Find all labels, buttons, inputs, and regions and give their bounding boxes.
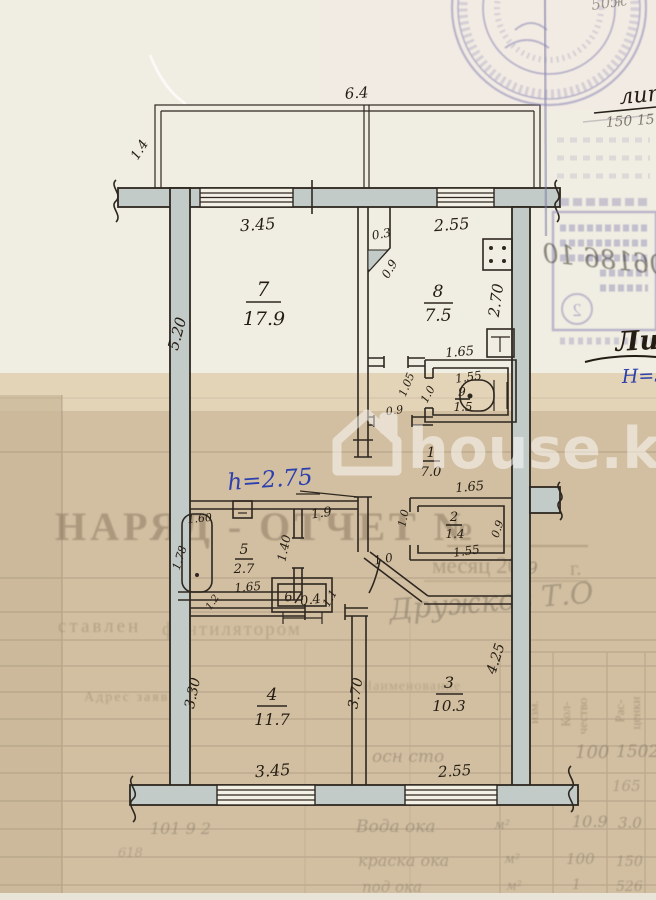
dim-wc-top: 1.65 [445, 344, 475, 361]
form-price-header2: ценки [628, 696, 643, 729]
form-price-header1: Рас- [612, 699, 627, 722]
form-qty-header1: Кол- [558, 701, 573, 726]
building-height-note: Н=3.0 [620, 364, 656, 388]
dim-r4-width: 3.45 [254, 760, 291, 781]
red-nums: 150 15 [605, 112, 655, 131]
dim-hall-width: 1.9 [310, 505, 333, 523]
row5-desc: под ока [362, 878, 422, 896]
row4-desc: краска ока [358, 851, 449, 870]
watermark-text: house.kg [408, 416, 656, 482]
dim-balcony-width: 6.4 [344, 83, 369, 103]
row5-unit: м² [506, 879, 522, 894]
room-9-area: 1.5 [453, 400, 472, 414]
row3-unit: м² [494, 818, 510, 833]
dim-bath-width: 1.60 [187, 511, 213, 526]
row1-qty: 100 [575, 742, 609, 763]
row4-unit: м² [504, 852, 520, 867]
room-2-number: 2 [449, 510, 458, 525]
row1-price: 1502 [616, 742, 656, 762]
form-qty-header2: чество [575, 698, 590, 735]
row1-desc: осн сто [372, 747, 444, 767]
room-7-area: 17.9 [243, 308, 285, 330]
stamp-number: 2 [573, 300, 582, 320]
dim-r8-width: 2.55 [432, 214, 470, 236]
room-5-number: 5 [240, 542, 249, 558]
dim-r7-width: 3.45 [239, 214, 276, 235]
row3-desc: Вода ока [355, 817, 436, 837]
form-address-frag: Адрес заявл [84, 690, 178, 705]
room-3-area: 10.3 [432, 697, 465, 715]
room-6-area: 0.4 [299, 592, 322, 610]
room-8-number: 8 [433, 282, 444, 302]
dim-r3-width: 2.55 [436, 761, 472, 781]
room-2-area: 1.4 [445, 527, 464, 541]
fold-crease [545, 0, 546, 236]
floorplan-photo: НАРЯД - ОТЧЕТ № месяц 200 г. ставлен фен… [0, 0, 656, 900]
lit-small-note: лит [618, 81, 656, 110]
row2-price: 165 [612, 777, 641, 795]
room-9-number: 9 [458, 385, 466, 399]
row4-price: 150 [616, 854, 643, 870]
row4-qty: 100 [566, 850, 595, 868]
room-5-area: 2.7 [233, 562, 255, 577]
row3-price: 3.0 [618, 814, 642, 832]
form-title: НАРЯД - ОТЧЕТ № [55, 504, 478, 549]
room-3-number: 3 [444, 673, 454, 692]
form-prepared-frag1: ставлен [58, 616, 141, 637]
left-num2: 618 [118, 846, 143, 861]
left-nums: 101 9 2 [150, 819, 211, 838]
row5-price: 526 [616, 879, 643, 895]
row3-qty: 10.9 [572, 812, 608, 831]
room-4-area: 11.7 [254, 710, 290, 729]
room-4-number: 4 [266, 685, 278, 705]
dim-bath-bottom: 1.65 [234, 579, 262, 595]
room-8-area: 7.5 [424, 306, 451, 326]
row5-qty: 1 [572, 877, 581, 893]
floorplan-canvas: НАРЯД - ОТЧЕТ № месяц 200 г. ставлен фен… [0, 0, 656, 900]
lit-big-note: Лит. [613, 323, 656, 358]
room-7-number: 7 [257, 277, 270, 301]
